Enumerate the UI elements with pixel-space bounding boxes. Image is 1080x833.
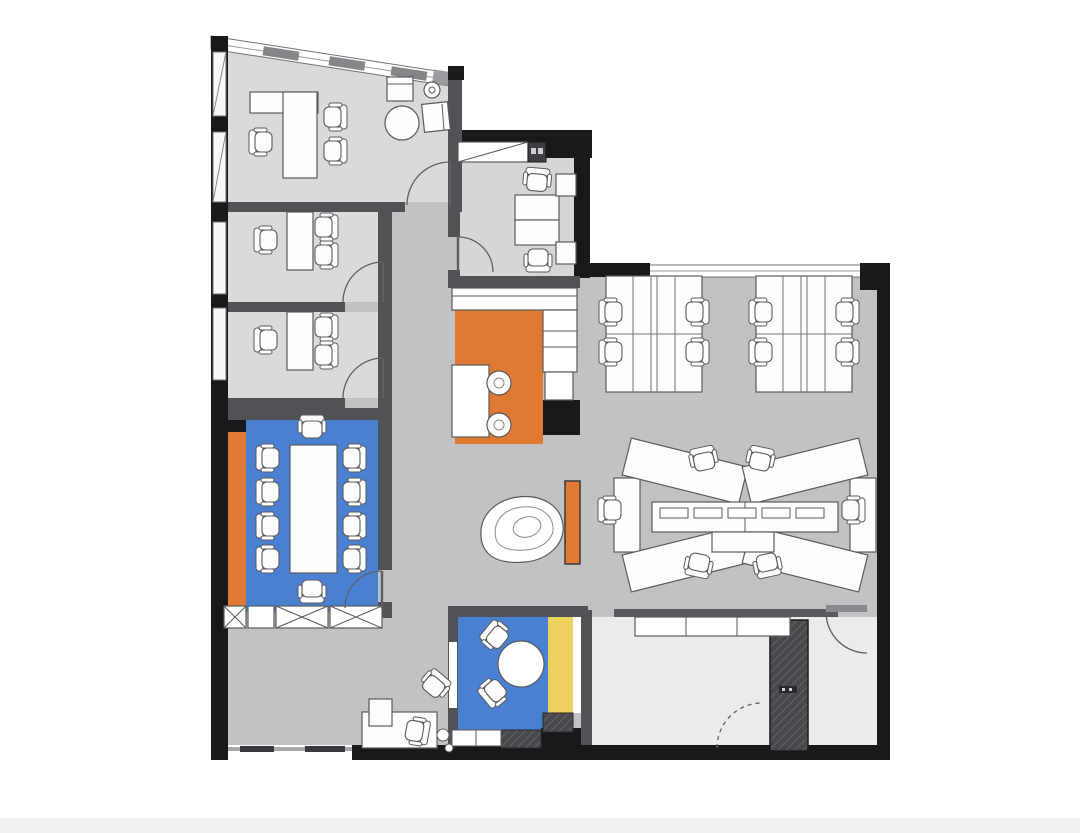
guest-chair xyxy=(315,241,338,269)
hotdesk-under-cabinet xyxy=(712,532,774,552)
pantry-stool xyxy=(487,371,511,395)
entrance-door-dash xyxy=(305,746,345,752)
equipment-box xyxy=(528,142,546,162)
wall-inset-panel xyxy=(213,222,226,294)
task-chair xyxy=(686,338,709,366)
storage-room-door-leaf xyxy=(826,605,867,612)
service-shaft-label-mark xyxy=(789,688,792,691)
offices-corridor-wall xyxy=(378,212,392,410)
task-chair xyxy=(749,338,772,366)
task-chair xyxy=(686,298,709,326)
round-side-table xyxy=(385,106,419,140)
phone-booth-white-sliver xyxy=(573,617,581,713)
conference-chair xyxy=(343,545,366,573)
equipment-box-label-mark xyxy=(538,148,543,154)
guest-chair xyxy=(324,103,347,131)
task-chair xyxy=(599,298,622,326)
hatched-wall-phone-booth-bottom xyxy=(501,730,541,748)
plant-pot xyxy=(424,82,440,98)
service-shaft xyxy=(770,620,808,751)
pantry-top-wall xyxy=(448,276,580,288)
conference-chair xyxy=(256,512,279,540)
office-floor-plan xyxy=(0,0,1080,833)
executive-office-right-wall-cap xyxy=(448,66,464,80)
hotdesk-chair xyxy=(842,496,865,524)
wall-inset-panel xyxy=(213,308,226,380)
conference-chair xyxy=(256,444,279,472)
pantry-tall-cabinet xyxy=(543,310,577,372)
floor-plan-canvas xyxy=(0,0,1080,833)
lounge-armchair xyxy=(422,102,451,133)
open-office-top-wall xyxy=(588,263,650,277)
meeting-desk xyxy=(515,220,559,245)
guest-chair xyxy=(315,213,338,241)
office-chair xyxy=(254,226,277,254)
hotdesk-drawer xyxy=(796,508,824,518)
exterior-wall-right xyxy=(877,263,890,760)
exterior-wall-bottom-left-stub xyxy=(211,745,228,760)
meeting-chair xyxy=(524,249,552,272)
conference-chair xyxy=(298,415,326,438)
guest-chair xyxy=(324,137,347,165)
meeting-desk xyxy=(515,195,559,220)
task-chair xyxy=(749,298,772,326)
waste-bin xyxy=(437,729,449,741)
conference-table xyxy=(290,445,337,573)
conference-chair xyxy=(343,444,366,472)
small-meeting-room-top-right-wall-block xyxy=(546,130,592,158)
partition-office3-meeting xyxy=(228,398,345,408)
task-chair xyxy=(599,338,622,366)
conference-chair xyxy=(343,512,366,540)
hatched-wall-under-yellow xyxy=(543,713,573,732)
service-shaft-label-mark xyxy=(782,688,785,691)
back-office-cabinet-row xyxy=(635,617,790,636)
hotdesk-chair xyxy=(598,496,621,524)
hotdesk-drawer xyxy=(694,508,722,518)
office3-desk xyxy=(287,312,313,370)
entrance-door-dash xyxy=(240,746,274,752)
printer-table xyxy=(387,77,413,101)
phone-booth-yellow-wall-finish xyxy=(548,617,573,713)
task-chair xyxy=(836,338,859,366)
pantry-stool xyxy=(487,413,511,437)
orange-screen-partition xyxy=(565,481,580,564)
hotdesk-drawer xyxy=(660,508,688,518)
conference-room-right-wall xyxy=(378,420,392,570)
phone-booth-right-wall xyxy=(581,610,592,745)
conference-chair xyxy=(256,545,279,573)
office2-desk xyxy=(287,212,313,270)
office-chair xyxy=(254,326,277,354)
pantry-appliance xyxy=(545,372,573,400)
side-cabinet xyxy=(556,242,576,264)
exterior-wall-top-right-corner xyxy=(860,263,890,290)
phone-booth-top-wall xyxy=(448,606,588,617)
conference-chair xyxy=(298,580,326,603)
waste-bin xyxy=(445,744,453,752)
phone-booth-sliding-door xyxy=(449,642,457,708)
office-chair xyxy=(249,128,272,156)
pantry-high-table xyxy=(452,365,489,437)
conference-chair xyxy=(343,478,366,506)
conference-chair xyxy=(256,478,279,506)
hotdesk-drawer xyxy=(762,508,790,518)
hotdesk-drawer xyxy=(728,508,756,518)
partition-office2-office3 xyxy=(228,302,345,312)
guest-chair xyxy=(315,341,338,369)
equipment-box-label-mark xyxy=(531,148,536,154)
conference-credenza xyxy=(248,606,274,628)
bottom-fade-strip xyxy=(0,818,1080,833)
executive-desk xyxy=(283,92,317,178)
guest-chair xyxy=(315,313,338,341)
reception-monitor xyxy=(369,699,392,726)
partition-office1-office2 xyxy=(228,202,405,212)
service-shaft-label xyxy=(779,686,797,693)
conference-room-orange-sideboard xyxy=(228,430,246,608)
structural-column xyxy=(543,400,580,435)
task-chair xyxy=(836,298,859,326)
pantry-counter xyxy=(452,288,577,310)
phone-booth-round-table xyxy=(498,641,544,687)
side-cabinet xyxy=(556,174,576,196)
back-office-counter-rail xyxy=(614,609,838,617)
